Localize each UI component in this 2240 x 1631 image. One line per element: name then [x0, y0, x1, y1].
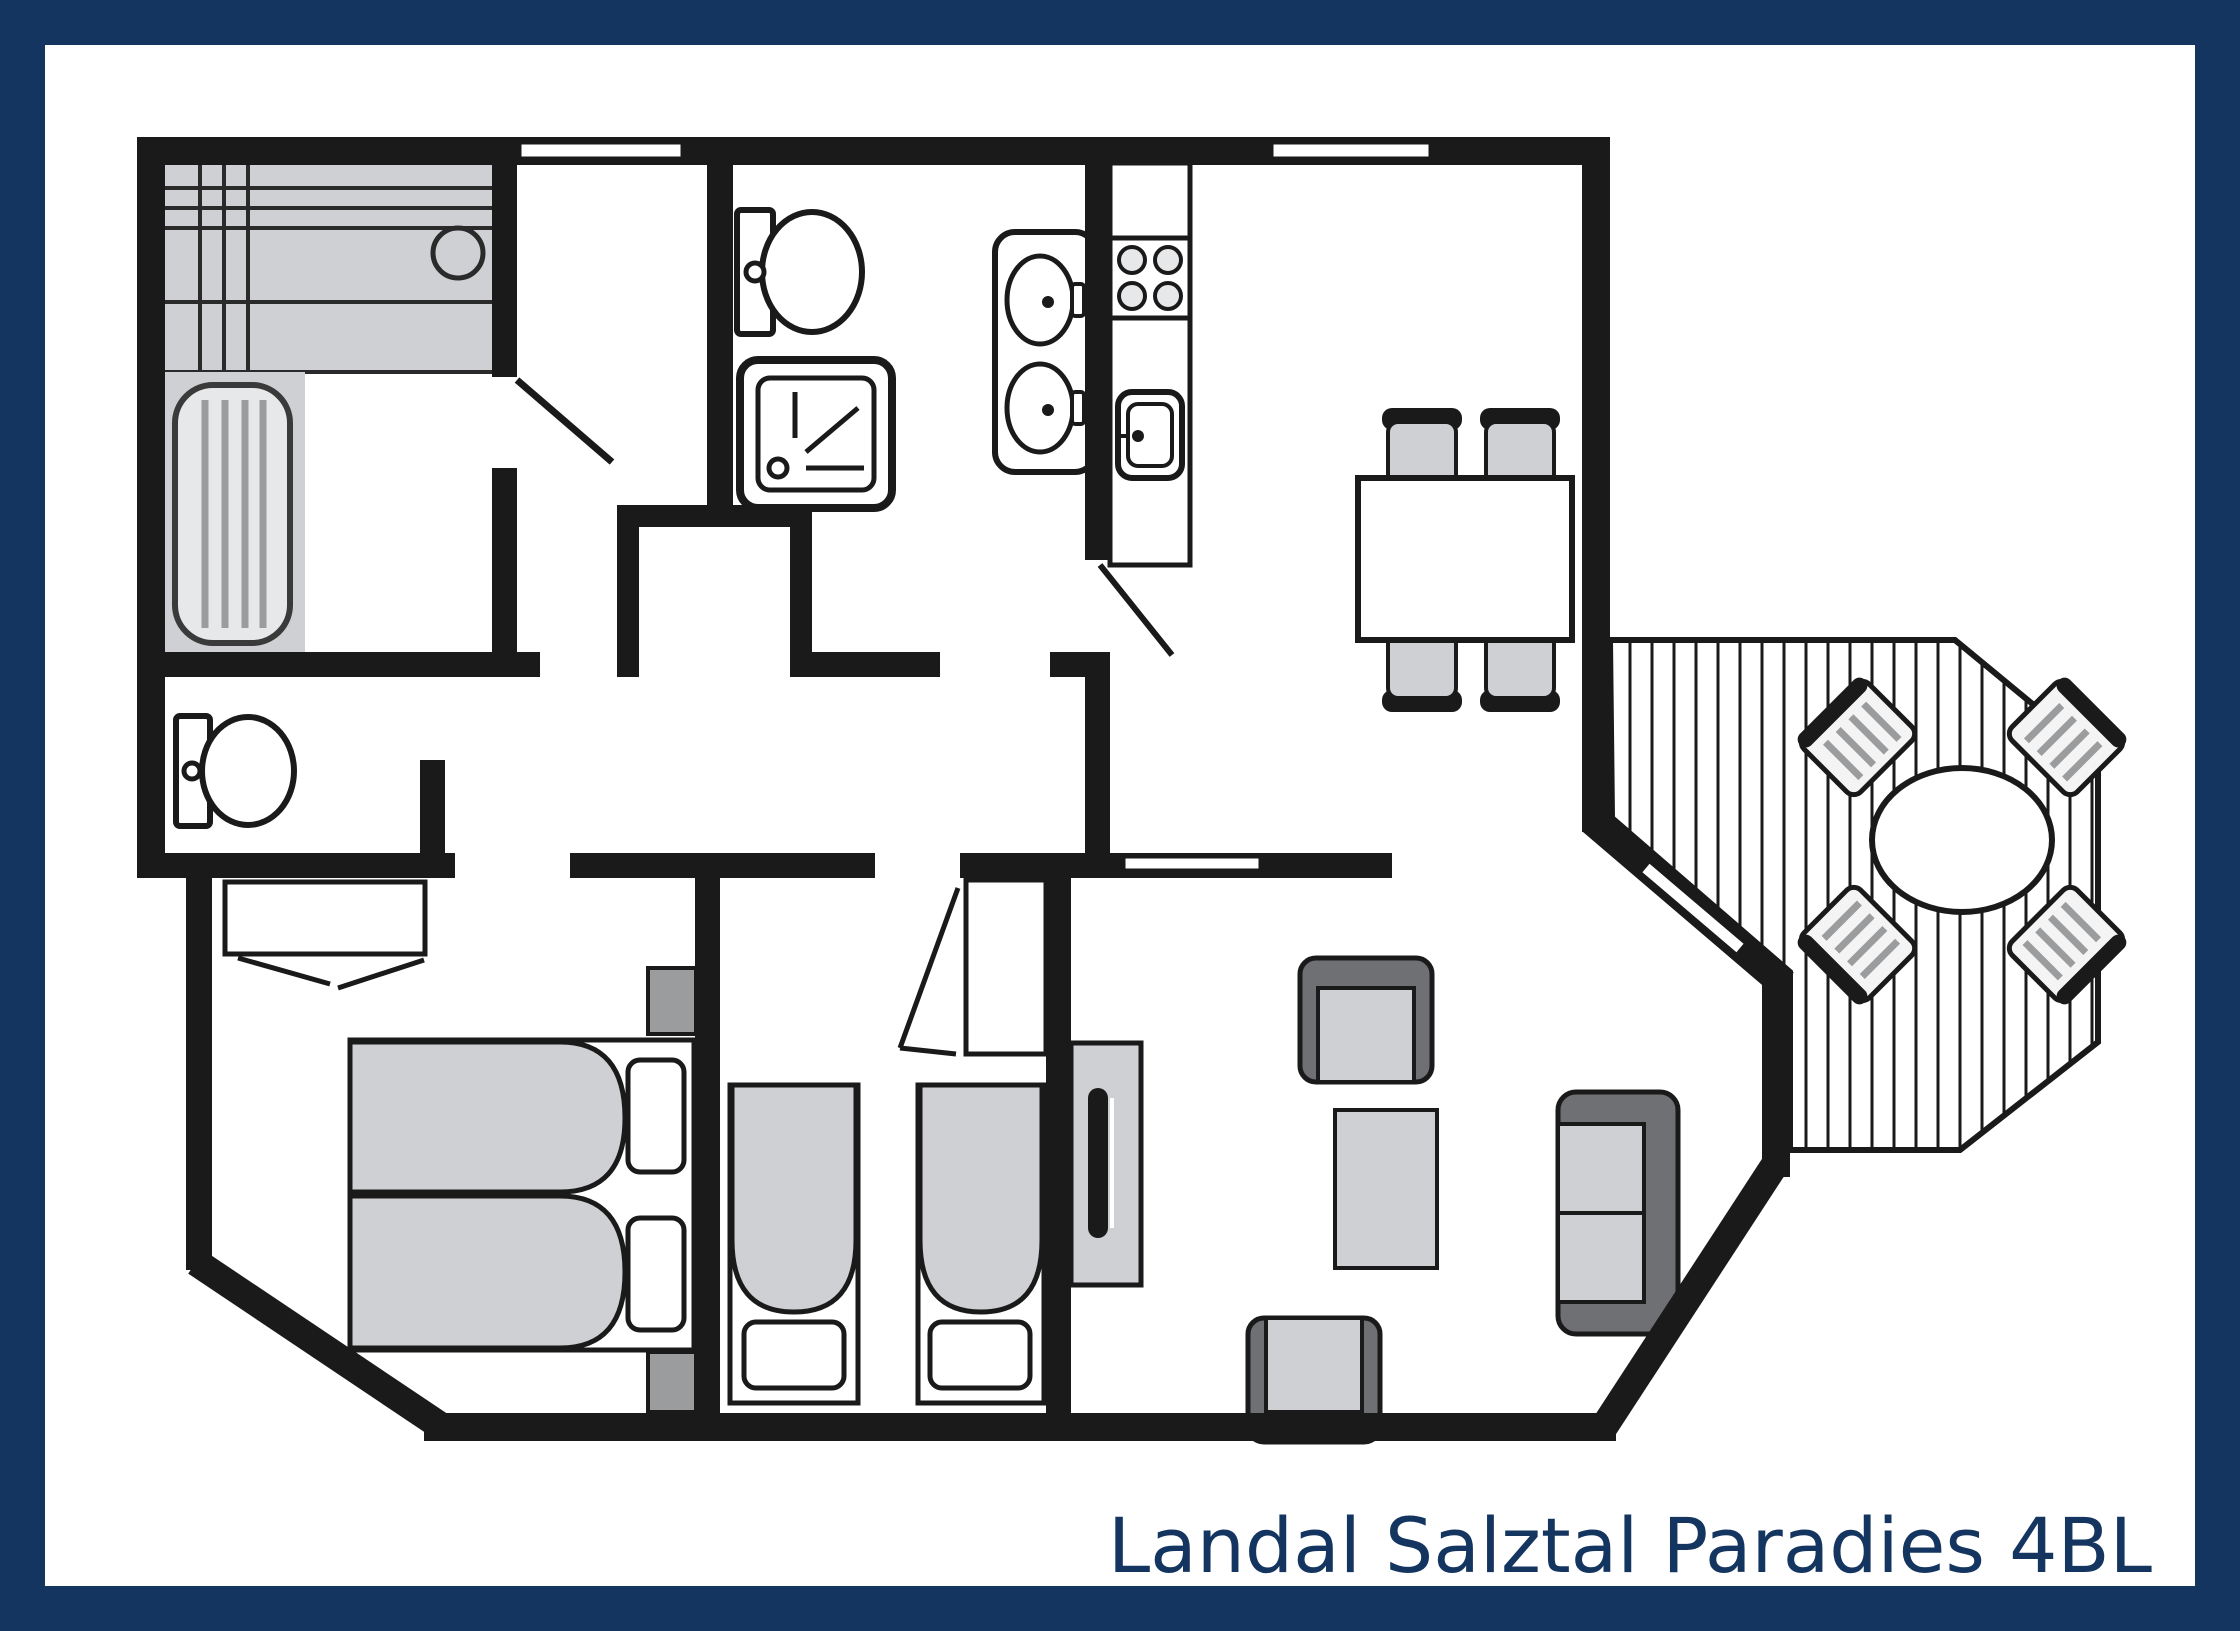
plan-title: Landal Salztal Paradies 4BL: [1108, 1501, 2152, 1590]
pillow: [930, 1322, 1030, 1388]
dining-table: [1358, 478, 1572, 640]
dining-chair: [1382, 408, 1462, 486]
single-bed: [730, 1085, 858, 1403]
wall-segment: [492, 155, 517, 377]
wall-segment: [707, 155, 733, 507]
wall-segment: [1046, 878, 1071, 1415]
wall-segment: [137, 853, 455, 878]
toilet: [176, 716, 294, 826]
floor-plan-page: Landal Salztal Paradies 4BL: [0, 0, 2240, 1631]
wall-segment: [186, 866, 212, 1270]
wall-segment: [1762, 972, 1790, 1177]
window: [1124, 857, 1260, 870]
pillow: [744, 1322, 844, 1388]
sauna-lounger: [175, 385, 290, 643]
stove-4-burners: [1110, 238, 1190, 318]
wall-segment: [1085, 660, 1110, 878]
pillow: [628, 1218, 684, 1330]
window: [520, 143, 682, 158]
double-bed: [350, 1040, 694, 1350]
wall-segment: [1582, 137, 1610, 832]
wall-segment: [960, 853, 1110, 878]
coffee-table: [1335, 1110, 1437, 1268]
sauna-heater: [433, 228, 483, 278]
mattress: [732, 1085, 856, 1312]
mattress: [350, 1042, 625, 1192]
wall-segment: [695, 878, 720, 1415]
kitchen-sink: [1118, 392, 1182, 478]
dining-chair: [1480, 634, 1560, 712]
wall-segment: [617, 505, 639, 677]
wall-segment: [424, 1413, 1616, 1441]
shower: [740, 360, 892, 508]
wall-segment: [617, 505, 812, 527]
mattress: [350, 1196, 625, 1348]
mattress: [920, 1085, 1042, 1312]
separate-wc: [176, 716, 294, 826]
floor-plan-canvas: Landal Salztal Paradies 4BL: [0, 0, 2240, 1631]
dining-chair: [1382, 634, 1462, 712]
wall-segment: [1085, 155, 1110, 560]
wall-segment: [137, 652, 540, 677]
nightstand: [648, 968, 696, 1034]
window: [1272, 143, 1430, 158]
dining-chair: [1480, 408, 1560, 486]
single-bed: [918, 1085, 1044, 1403]
wall-segment: [790, 505, 812, 677]
wall-segment: [812, 652, 940, 677]
armchair: [1300, 958, 1432, 1082]
tv-icon: [1088, 1088, 1108, 1238]
pillow: [628, 1060, 684, 1172]
wall-segment: [137, 137, 165, 878]
sofa: [1558, 1092, 1678, 1334]
nightstand: [648, 1352, 696, 1412]
wall-segment: [570, 853, 875, 878]
tv-cabinet: [1071, 1043, 1141, 1285]
kitchen-counter: [1110, 163, 1190, 565]
terrace-round-table: [1872, 768, 2052, 912]
wall-segment: [420, 760, 445, 855]
toilet: [737, 210, 862, 334]
double-washbasin: [995, 232, 1095, 472]
wall-segment: [492, 468, 517, 677]
